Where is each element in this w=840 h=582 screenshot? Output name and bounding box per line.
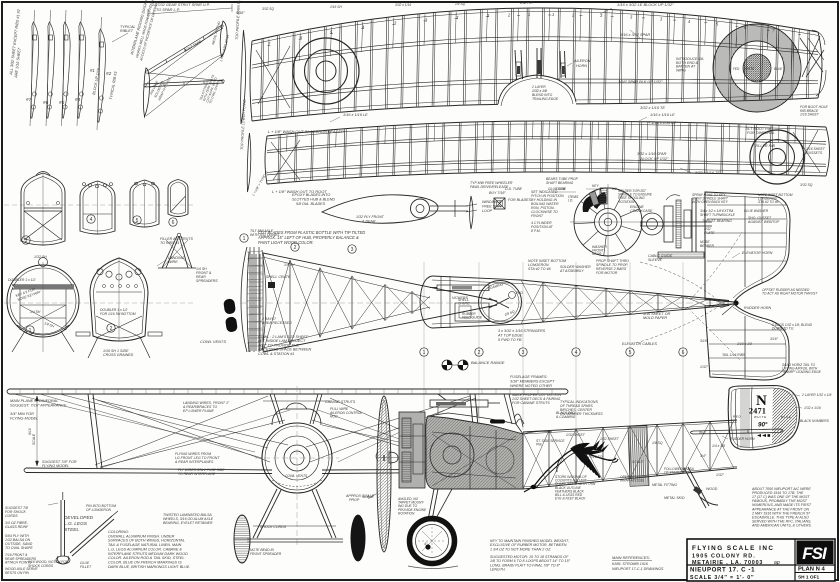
svg-text:“SHARP” LEADING EDGE: “SHARP” LEADING EDGE [782, 370, 822, 374]
svg-text:CRANKCASE: CRANKCASE [630, 209, 653, 213]
svg-text:3 x 3/32 x 1/16 STRINGERS: 3 x 3/32 x 1/16 STRINGERS [498, 329, 546, 333]
svg-text:SHELL CRATE: SHELL CRATE [266, 275, 291, 279]
svg-text:2: 2 [294, 245, 297, 251]
svg-text:R E D: R E D [733, 415, 741, 419]
svg-text:RUDDER HORN: RUDDER HORN [744, 306, 771, 310]
svg-text:1/16 x 3/32 SPAR: 1/16 x 3/32 SPAR [620, 33, 650, 37]
svg-text:METAIRIE , LA. 70003: METAIRIE , LA. 70003 [692, 560, 763, 566]
svg-text:NIEUPORT 17-C-1 DRAWINGS: NIEUPORT 17-C-1 DRAWINGS [612, 567, 664, 571]
svg-text:3/4″: 3/4″ [700, 454, 707, 458]
svg-text:4: 4 [90, 217, 93, 223]
svg-text:FRONT SPREADER: FRONT SPREADER [250, 552, 282, 556]
svg-text:DEVELOPED: DEVELOPED [64, 515, 94, 521]
svg-text:BEARER: BEARER [700, 244, 714, 248]
svg-text:1/16 SH: 1/16 SH [330, 5, 342, 9]
svg-text:W H I T E: W H I T E [754, 415, 766, 419]
svg-text:COWL VENTS: COWL VENTS [285, 474, 308, 478]
svg-text:FLYING SCALE INC: FLYING SCALE INC [692, 545, 774, 552]
svg-text:BLUE: BLUE [774, 67, 783, 71]
svg-text:FOR BLADES: FOR BLADES [508, 198, 531, 202]
svg-text:#7: #7 [26, 97, 32, 103]
svg-text:#4: #4 [75, 97, 81, 103]
svg-text:SHOCK CORDS: SHOCK CORDS [28, 564, 54, 568]
svg-text:3/32 SQ: 3/32 SQ [800, 183, 813, 187]
svg-text:I.D.: I.D. [568, 199, 573, 203]
svg-text:TRAILING EDGE: TRAILING EDGE [532, 97, 559, 101]
svg-text:MAIN REFERENCES:: MAIN REFERENCES: [612, 556, 650, 560]
svg-text:PNL: PNL [536, 443, 543, 447]
svg-text:FEED GUIDE: FEED GUIDE [462, 316, 483, 320]
svg-text:SCALE: SCALE [32, 433, 36, 445]
svg-text:3: 3 [522, 350, 525, 356]
svg-text:COWL VENTS: COWL VENTS [200, 339, 226, 344]
svg-text:ROTATION: ROTATION [618, 200, 635, 204]
svg-text:#1: #1 [90, 68, 95, 73]
svg-text:ROD: ROD [330, 415, 338, 419]
svg-text:& REAR INTERPLANES: & REAR INTERPLANES [175, 460, 214, 464]
svg-text:WOOD: WOOD [706, 487, 718, 491]
svg-text:KARL STROMBI 1916: KARL STROMBI 1916 [612, 562, 648, 566]
svg-text:1/32″: 1/32″ [716, 473, 725, 477]
svg-text:AND AMERICAN UNITS, & OTHERS.: AND AMERICAN UNITS, & OTHERS. [751, 523, 812, 527]
svg-text:TO ACT AS RIGHT MOTOR THRUST: TO ACT AS RIGHT MOTOR THRUST [762, 292, 818, 296]
svg-text:SH 1 OF1: SH 1 OF1 [798, 575, 819, 581]
svg-text:LOOP: LOOP [482, 209, 493, 213]
svg-text:PAINT LIGHT WOOD COLOR.: PAINT LIGHT WOOD COLOR. [258, 240, 314, 245]
svg-text:GUSSETS: GUSSETS [806, 151, 823, 155]
svg-text:B L U E: B L U E [781, 415, 791, 419]
svg-text:GLUE 5/16″: GLUE 5/16″ [548, 187, 567, 191]
svg-text:WING: WING [676, 68, 686, 72]
svg-text:1/4 SH: 1/4 SH [284, 263, 295, 267]
svg-text:1: 1 [29, 328, 32, 334]
svg-text:HORN: HORN [576, 64, 587, 68]
svg-text:2: 2 [110, 326, 113, 332]
svg-text:3/16″: 3/16″ [770, 337, 779, 341]
svg-text:AGAINST WEB/TOP: AGAINST WEB/TOP [747, 220, 780, 224]
svg-text:FILLER RIB: FILLER RIB [755, 144, 775, 148]
svg-text:CORDS: CORDS [5, 514, 18, 518]
svg-text:METAL SKID: METAL SKID [664, 496, 685, 500]
svg-text:AREA RECESSED: AREA RECESSED [261, 321, 292, 325]
svg-text:FED: FED [733, 67, 740, 71]
svg-text:WIRE: WIRE [168, 260, 178, 264]
svg-text:STEEL: STEEL [64, 527, 79, 533]
svg-text:1/32″: 1/32″ [700, 365, 709, 369]
svg-text:#6: #6 [43, 100, 49, 106]
svg-text:90°: 90° [758, 422, 768, 429]
svg-text:O.D. TUBE: O.D. TUBE [505, 187, 523, 191]
svg-text:OF LONGERON: OF LONGERON [86, 508, 111, 512]
svg-text:BUY 7/16″: BUY 7/16″ [489, 191, 506, 195]
svg-text:GLUE WASHER: GLUE WASHER [744, 209, 769, 213]
svg-text:6: 6 [682, 350, 685, 356]
svg-text:1/16 x 1/16 LE: 1/16 x 1/16 LE [650, 113, 675, 117]
svg-text:#5: #5 [59, 100, 65, 106]
svg-text:5/8 DIA. BLADES: 5/8 DIA. BLADES [296, 202, 326, 206]
svg-text:PAWL DRIVE/RELEASE: PAWL DRIVE/RELEASE [470, 185, 509, 189]
svg-text:1/16 x 1/8: 1/16 x 1/8 [737, 342, 752, 346]
svg-text:SCALE 3/4″ = 1′- 0″: SCALE 3/4″ = 1′- 0″ [690, 575, 754, 581]
svg-text:& REAR: & REAR [362, 220, 376, 224]
svg-text:STA #2 TO #6: STA #2 TO #6 [758, 200, 779, 204]
svg-text:KEY: KEY [592, 184, 600, 188]
svg-text:1: 1 [423, 350, 426, 356]
svg-text:1: 1 [528, 12, 530, 17]
svg-text:FOR MOTOR: FOR MOTOR [596, 271, 618, 275]
svg-text:1 3/4 OZ TO NOT MORE THAN 2 OZ: 1 3/4 OZ TO NOT MORE THAN 2 OZ. [490, 547, 551, 551]
svg-text:1/8 SQ: 1/8 SQ [652, 441, 663, 445]
svg-text:FSI: FSI [802, 544, 828, 563]
svg-text:1/16 SHEET: 1/16 SHEET [800, 113, 820, 117]
svg-text:THRUST BEARING: THRUST BEARING [702, 219, 732, 223]
svg-text:3/16″: 3/16″ [700, 339, 709, 343]
svg-text:WHITE: WHITE [744, 67, 755, 71]
svg-text:MOLD PAPER: MOLD PAPER [643, 316, 667, 320]
svg-text:1/32 SH: 1/32 SH [34, 255, 47, 259]
svg-text:FLYING MODEL: FLYING MODEL [10, 417, 38, 421]
svg-text:5: 5 [136, 218, 139, 224]
svg-text:SCOUT: SCOUT [632, 460, 645, 464]
svg-text:GLASS REINF: GLASS REINF [5, 525, 29, 529]
svg-text:TO REAR INTERPLANE: TO REAR INTERPLANE [178, 472, 216, 476]
svg-text:1/8: 1/8 [612, 187, 617, 191]
svg-text:PAD: PAD [516, 291, 523, 295]
svg-text:1/16″ SPAR BLK UP 1/32″: 1/16″ SPAR BLK UP 1/32″ [618, 80, 663, 84]
svg-text:FRONT: FRONT [531, 214, 544, 218]
svg-text:RIBLET: RIBLET [120, 29, 134, 33]
svg-text:BALANCE RANGE: BALANCE RANGE [471, 360, 505, 365]
svg-text:1/16 x 1/16 LE: 1/16 x 1/16 LE [343, 113, 368, 117]
svg-text:FLYING MODEL: FLYING MODEL [42, 464, 69, 468]
svg-text:2: 2 [478, 350, 481, 356]
svg-text:DARK BLUE, BRITISH MARKINGS LI: DARK BLUE, BRITISH MARKINGS LIGHT BLUE. [108, 565, 190, 569]
svg-text:FOR DIHEDRAL: FOR DIHEDRAL [747, 131, 775, 135]
svg-text:AT TOP EDGE: AT TOP EDGE [497, 333, 523, 337]
svg-text:ELEVATOR CABLES: ELEVATOR CABLES [622, 342, 658, 346]
svg-text:WITH OPEN BACK KEY: WITH OPEN BACK KEY [692, 200, 729, 204]
svg-text:3: 3 [351, 247, 354, 253]
svg-text:RESTS ON PIN: RESTS ON PIN [5, 571, 29, 575]
svg-text:EYE & FEET BLACK: EYE & FEET BLACK [555, 497, 586, 501]
svg-text:3/4″: 3/4″ [700, 431, 707, 435]
svg-text:8 P.M.: 8 P.M. [531, 229, 541, 233]
svg-text:SHOCK CORDS: SHOCK CORDS [260, 525, 287, 529]
svg-text:ELEVATOR HORN: ELEVATOR HORN [742, 251, 773, 255]
svg-text:1/32 PLY FRONT: 1/32 PLY FRONT [356, 215, 385, 219]
svg-text:SPREADERS: SPREADERS [196, 279, 218, 283]
svg-text:3/16″ MEMBERS EXCEPT: 3/16″ MEMBERS EXCEPT [510, 379, 555, 383]
svg-text:SLOTTED HUB & BLEND: SLOTTED HUB & BLEND [292, 198, 335, 202]
svg-text:TO SPAR L.P.: TO SPAR L.P. [156, 8, 180, 12]
svg-text:NIEUPORT 17. C -1: NIEUPORT 17. C -1 [690, 567, 755, 574]
svg-text:1905 COLONY RD.: 1905 COLONY RD. [692, 554, 756, 560]
svg-text:4: 4 [575, 350, 578, 356]
svg-text:CHUTE: CHUTE [458, 302, 470, 306]
svg-text:ap: ap [774, 560, 780, 566]
svg-text:6: 6 [172, 220, 175, 226]
svg-text:STA #2 TO #6: STA #2 TO #6 [528, 267, 551, 271]
svg-text:1/16 x 3/32 LE BLOCK UP 1/32″: 1/16 x 3/32 LE BLOCK UP 1/32″ [617, 2, 674, 7]
svg-text:CROSS GRAINED: CROSS GRAINED [103, 353, 134, 357]
svg-text:1: 1 [243, 236, 246, 242]
svg-text:METAL FITTING: METAL FITTING [652, 483, 677, 487]
svg-text:3/32 x 1/16 SPAR: 3/32 x 1/16 SPAR [637, 152, 667, 156]
svg-text:#2: #2 [106, 71, 112, 77]
svg-text:SHAFT BEARING: SHAFT BEARING [546, 181, 574, 185]
svg-text:BLOCK UP 1/32″: BLOCK UP 1/32″ [640, 157, 669, 161]
svg-text:FILLET: FILLET [80, 565, 92, 569]
svg-text:3/32 x 1/16 TE: 3/32 x 1/16 TE [640, 106, 665, 110]
svg-text:1/4 SQ: 1/4 SQ [455, 2, 466, 6]
svg-text:3/4″ MIN FOR: 3/4″ MIN FOR [10, 412, 34, 416]
svg-text:DOWN TO T.E.: DOWN TO T.E. [772, 327, 794, 331]
svg-text:1/32 x 1/16: 1/32 x 1/16 [804, 406, 821, 410]
svg-text:BEARING, EYELET RETAINER: BEARING, EYELET RETAINER [163, 521, 213, 525]
svg-text:PROP: PROP [349, 498, 360, 502]
svg-text:AT ASSEMBLY: AT ASSEMBLY [559, 269, 584, 273]
svg-text:DOUBLER 1 x 1/2: DOUBLER 1 x 1/2 [8, 278, 36, 282]
svg-text:CABANE STRUTS: CABANE STRUTS [325, 400, 356, 404]
svg-text:FUSELAGE FRAMES:: FUSELAGE FRAMES: [510, 375, 547, 379]
svg-text:1/32 PLY: 1/32 PLY [520, 1, 534, 5]
svg-text:FOR 1/16 SH BOTTOM: FOR 1/16 SH BOTTOM [100, 312, 136, 316]
svg-text:COWL & STATION #1: COWL & STATION #1 [258, 352, 294, 356]
svg-text:WHERE NOTED OTHER: WHERE NOTED OTHER [510, 384, 552, 388]
svg-text:AILERON: AILERON [573, 59, 591, 63]
svg-text:1/16 SQ: 1/16 SQ [590, 455, 603, 459]
svg-text:1/4 x 3/8: 1/4 x 3/8 [712, 444, 725, 448]
svg-text:5: 5 [629, 350, 632, 356]
svg-text:EP LOWER PLANE: EP LOWER PLANE [183, 409, 214, 413]
svg-text:REAR: REAR [592, 252, 602, 256]
svg-text:3/32 SQ: 3/32 SQ [262, 7, 274, 11]
svg-text:3/32 x 1/16: 3/32 x 1/16 [395, 3, 411, 7]
svg-text:FOR CABANE STRUTS: FOR CABANE STRUTS [512, 401, 550, 405]
svg-text:BLACK NUMBERS: BLACK NUMBERS [800, 419, 830, 423]
svg-text:TO OVAL SHAPE: TO OVAL SHAPE [5, 546, 33, 550]
svg-text:3/32 x 1/16 TE: 3/32 x 1/16 TE [695, 171, 720, 175]
svg-text:PLAN N 4: PLAN N 4 [798, 567, 826, 573]
svg-text:SLEEVE: SLEEVE [648, 258, 663, 262]
svg-text:1/32 SHEET: 1/32 SHEET [600, 437, 620, 441]
svg-text:2 LAYER 1/32 x 1/8: 2 LAYER 1/32 x 1/8 [801, 393, 832, 397]
svg-text:5 FWD TO FB: 5 FWD TO FB [498, 338, 522, 342]
svg-text:WRAP ACCESS: WRAP ACCESS [620, 479, 645, 483]
svg-text:ROTATION: ROTATION [398, 511, 415, 515]
svg-text:OF STERNPOST: OF STERNPOST [664, 471, 690, 475]
svg-text:LENGTH.: LENGTH. [490, 568, 506, 572]
svg-text:1: 1 [552, 12, 554, 17]
svg-text:1/4 SH: 1/4 SH [30, 310, 41, 314]
svg-text:& COAMING: & COAMING [556, 415, 576, 419]
svg-text:MAIN PLANE 0° DIHEDRAL: MAIN PLANE 0° DIHEDRAL [10, 399, 58, 403]
svg-text:1/32 SHEET: 1/32 SHEET [566, 433, 586, 437]
svg-text:L.G. LEGS: L.G. LEGS [64, 521, 88, 527]
svg-text:SUGGEST: 7/16″ APPEARANCE: SUGGEST: 7/16″ APPEARANCE [10, 403, 67, 407]
svg-text:EPOXY BLADES INTO: EPOXY BLADES INTO [292, 193, 330, 197]
svg-text:3: 3 [25, 238, 28, 244]
svg-text:RUDDER HORN: RUDDER HORN [730, 437, 755, 441]
svg-text:TAIL 1/16 RIBS: TAIL 1/16 RIBS [722, 353, 746, 357]
svg-text:2 27/32 GEAR STRUT SPAR U.P.: 2 27/32 GEAR STRUT SPAR U.P. [151, 3, 210, 7]
